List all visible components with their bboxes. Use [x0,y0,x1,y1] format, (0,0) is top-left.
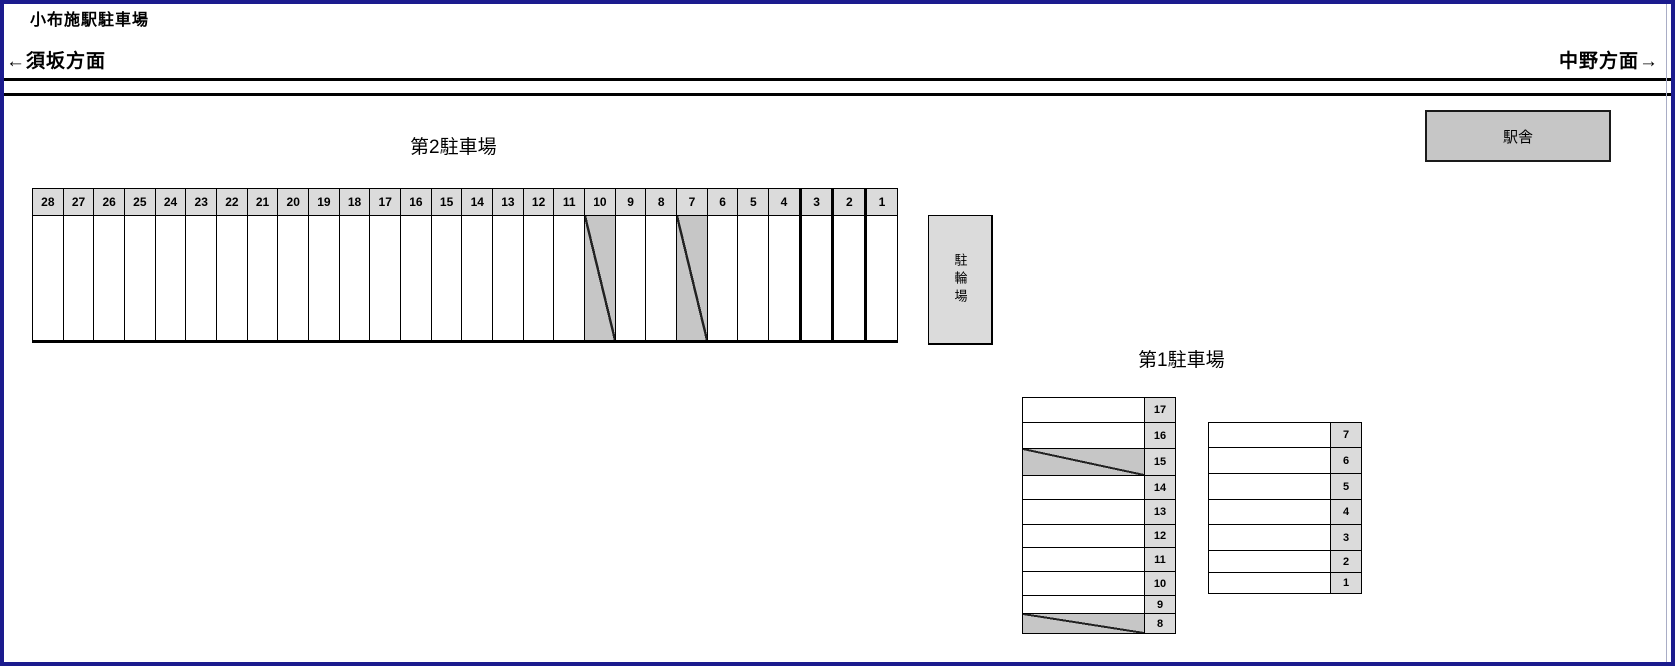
row-number: 6 [1330,447,1362,474]
parking-space: 3 [799,189,832,340]
row-number: 9 [1144,595,1176,614]
lot2-spaces: 2827262524232221201918171615141312111098… [32,188,898,343]
parking-row: 9 [1022,595,1176,614]
parking-space: 7 [676,189,707,340]
space-number: 16 [401,189,431,216]
row-number: 4 [1330,499,1362,525]
space-area [370,216,400,340]
parking-row: 8 [1022,613,1176,634]
lot1-title: 第1駐車場 [1138,345,1225,372]
space-number: 23 [186,189,216,216]
parking-space: 13 [492,189,523,340]
page-title: 小布施駅駐車場 [30,6,149,30]
space-number: 24 [156,189,186,216]
row-area [1022,571,1145,596]
parking-row: 17 [1022,397,1176,423]
parking-row: 14 [1022,475,1176,500]
parking-space: 11 [553,189,584,340]
parking-space: 12 [523,189,554,340]
parking-row: 13 [1022,499,1176,525]
parking-space: 19 [308,189,339,340]
parking-space: 10 [584,189,615,340]
station-building: 駅舎 [1425,110,1611,162]
parking-space: 27 [63,189,94,340]
parking-space: 28 [33,189,63,340]
space-area [33,216,63,340]
space-area [677,216,707,340]
row-area [1022,475,1145,500]
row-area [1022,422,1145,449]
space-area [156,216,186,340]
row-number: 8 [1144,613,1176,634]
page-frame: 小布施駅駐車場 ←須坂方面 中野方面→ 駅舎 第2駐車場 28272625242… [0,0,1675,666]
row-number: 2 [1330,550,1362,573]
space-number: 18 [340,189,370,216]
railway-track-top-rail [4,78,1671,81]
row-area [1022,448,1145,476]
parking-space: 22 [216,189,247,340]
space-number: 1 [867,189,897,216]
space-number: 28 [33,189,63,216]
parking-space: 26 [93,189,124,340]
bicycle-parking-label: 駐輪場 [951,253,970,307]
row-number: 3 [1330,524,1362,551]
space-area [585,216,615,340]
parking-space: 16 [400,189,431,340]
row-area [1022,595,1145,614]
parking-space: 9 [615,189,646,340]
row-number: 17 [1144,397,1176,423]
row-number: 11 [1144,547,1176,572]
space-number: 12 [524,189,554,216]
parking-row: 11 [1022,547,1176,572]
row-area [1022,499,1145,525]
parking-space: 25 [124,189,155,340]
parking-space: 24 [155,189,186,340]
row-area [1208,550,1331,573]
parking-row: 10 [1022,571,1176,596]
row-number: 13 [1144,499,1176,525]
space-area [867,216,897,340]
parking-space: 14 [461,189,492,340]
parking-space: 18 [339,189,370,340]
row-number: 7 [1330,422,1362,448]
parking-space: 5 [737,189,768,340]
parking-space: 6 [707,189,738,340]
space-number: 4 [769,189,799,216]
space-number: 17 [370,189,400,216]
space-area [834,216,864,340]
space-number: 9 [616,189,646,216]
row-number: 16 [1144,422,1176,449]
parking-space: 17 [369,189,400,340]
space-number: 10 [585,189,615,216]
row-area [1208,572,1331,594]
parking-row: 2 [1208,550,1362,573]
lot1-left-column: 171615141312111098 [1022,397,1176,634]
railway-track-bottom-rail [4,93,1671,96]
space-area [646,216,676,340]
row-area [1208,422,1331,448]
parking-space: 2 [831,189,864,340]
parking-row: 7 [1208,422,1362,448]
row-area [1022,524,1145,548]
station-building-label: 駅舎 [1503,126,1533,147]
parking-row: 12 [1022,524,1176,548]
space-area [217,216,247,340]
space-number: 11 [554,189,584,216]
parking-space: 4 [768,189,799,340]
space-area [616,216,646,340]
space-area [769,216,799,340]
parking-space: 1 [864,189,897,340]
row-area [1022,547,1145,572]
lot1-right-column: 7654321 [1208,422,1362,594]
space-area [309,216,339,340]
direction-suzaka: ←須坂方面 [6,46,106,73]
direction-nakano: 中野方面→ [1559,46,1659,73]
parking-row: 4 [1208,499,1362,525]
space-area [524,216,554,340]
parking-space: 15 [431,189,462,340]
space-area [186,216,216,340]
bicycle-parking: 駐輪場 [928,215,993,345]
space-area [278,216,308,340]
space-number: 21 [248,189,278,216]
row-area [1208,524,1331,551]
space-area [401,216,431,340]
parking-space: 8 [645,189,676,340]
space-number: 2 [834,189,864,216]
parking-space: 21 [247,189,278,340]
row-number: 14 [1144,475,1176,500]
parking-row: 1 [1208,572,1362,594]
space-number: 5 [738,189,768,216]
parking-row: 5 [1208,473,1362,500]
space-number: 15 [432,189,462,216]
row-number: 5 [1330,473,1362,500]
space-area [64,216,94,340]
space-number: 20 [278,189,308,216]
space-area [708,216,738,340]
space-area [340,216,370,340]
space-area [738,216,768,340]
parking-row: 16 [1022,422,1176,449]
parking-row: 15 [1022,448,1176,476]
row-area [1022,613,1145,634]
space-area [493,216,523,340]
row-number: 15 [1144,448,1176,476]
space-area [802,216,832,340]
space-number: 3 [802,189,832,216]
space-number: 8 [646,189,676,216]
space-number: 22 [217,189,247,216]
row-area [1208,499,1331,525]
parking-row: 6 [1208,447,1362,474]
space-number: 6 [708,189,738,216]
row-number: 12 [1144,524,1176,548]
space-area [432,216,462,340]
space-area [554,216,584,340]
space-number: 7 [677,189,707,216]
row-number: 10 [1144,571,1176,596]
space-area [125,216,155,340]
space-area [248,216,278,340]
row-number: 1 [1330,572,1362,594]
row-area [1208,473,1331,500]
lot2-title: 第2駐車場 [410,132,497,159]
parking-space: 20 [277,189,308,340]
space-number: 13 [493,189,523,216]
row-area [1208,447,1331,474]
space-number: 19 [309,189,339,216]
space-number: 27 [64,189,94,216]
space-area [462,216,492,340]
space-number: 14 [462,189,492,216]
parking-row: 3 [1208,524,1362,551]
space-number: 25 [125,189,155,216]
parking-space: 23 [185,189,216,340]
row-area [1022,397,1145,423]
space-area [94,216,124,340]
page-boundary-line [1666,4,1667,662]
space-number: 26 [94,189,124,216]
